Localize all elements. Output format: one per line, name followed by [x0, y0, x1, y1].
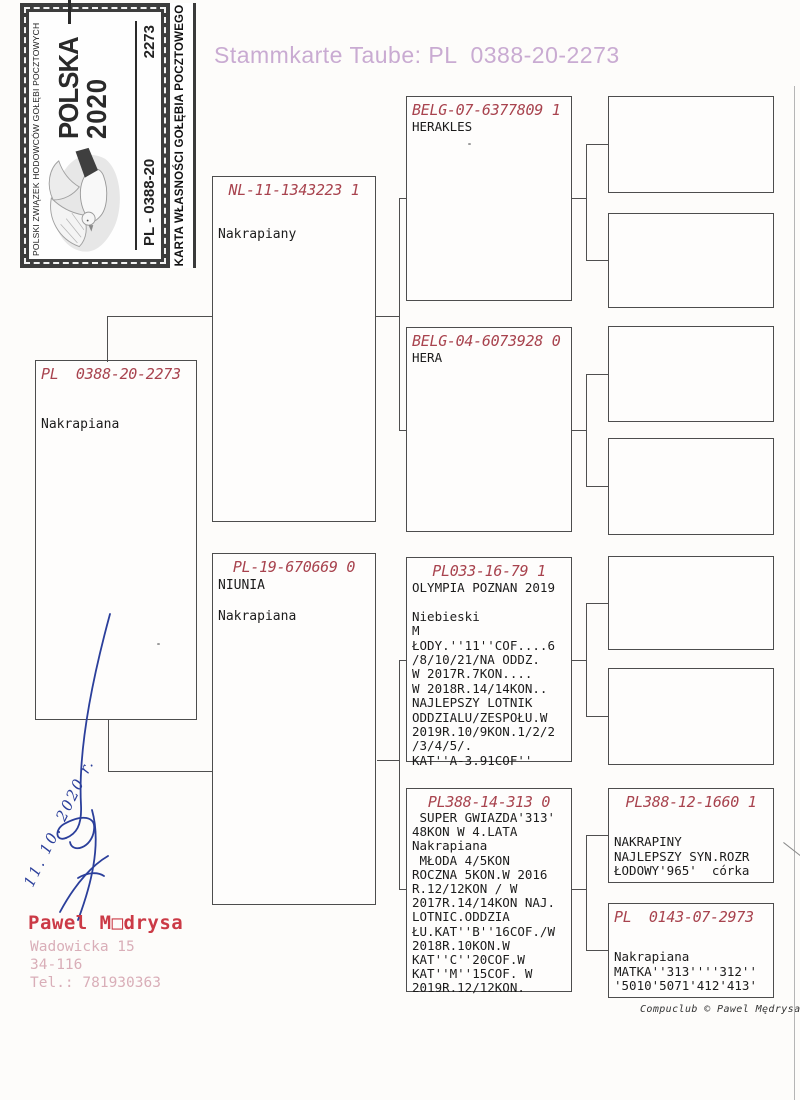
ring-number: BELG-04-6073928 0	[412, 332, 566, 350]
box-great-grandparent-3	[608, 326, 774, 422]
connector-line	[107, 316, 212, 317]
connector-line	[376, 316, 399, 317]
ring-number: PL 0388-20-2273	[41, 365, 191, 383]
connector-line	[586, 486, 608, 487]
bird-info: NIUNIA Nakrapiana	[218, 578, 370, 625]
ring-number: PL388-12-1660 1	[614, 793, 768, 811]
box-great-grandparent-6	[608, 668, 774, 765]
connector-line	[399, 198, 406, 199]
connector-line	[586, 835, 608, 836]
connector-line	[399, 660, 400, 890]
connector-line	[586, 144, 608, 145]
box-great-grandparent-8: PL 0143-07-2973 Nakrapiana MATKA''313'''…	[608, 903, 774, 998]
ring-number: PL 0143-07-2973	[614, 908, 768, 926]
connector-line	[586, 835, 587, 950]
bird-info: NAKRAPINY NAJLEPSZY SYN.ROZR ŁODOWY'965'…	[614, 835, 768, 879]
ring-number: PL388-14-313 0	[412, 793, 566, 811]
bird-info: Nakrapiana MATKA''313''''312'' '5010'507…	[614, 950, 768, 994]
box-great-grandparent-5	[608, 556, 774, 650]
connector-line	[572, 198, 586, 199]
stamp-rotated-content: POLSKI ZWIĄZEK HODOWCÓW GOŁĘBI POCZTOWYC…	[20, 3, 196, 268]
bird-info: Nakrapiana	[41, 417, 191, 433]
connector-line	[107, 316, 108, 362]
connector-line	[572, 889, 586, 890]
stamp-year: 2020	[83, 0, 111, 139]
connector-line	[586, 603, 587, 716]
handwritten-signature-ink	[48, 610, 148, 930]
bird-info: Nakrapiany	[218, 227, 370, 243]
scan-stray-mark	[783, 842, 800, 857]
box-great-grandparent-4	[608, 438, 774, 535]
connector-line	[399, 198, 400, 431]
box-great-grandparent-7: PL388-12-1660 1 NAKRAPINY NAJLEPSZY SYN.…	[608, 788, 774, 883]
pedigree-card-scan: POLSKI ZWIĄZEK HODOWCÓW GOŁĘBI POCZTOWYC…	[0, 0, 800, 1100]
owner-address: Wadowicka 15 34-116 Tel.: 781930363	[30, 938, 161, 992]
box-grandfather-maternal: PL033-16-79 1 OLYMPIA POZNAN 2019 Niebie…	[406, 557, 572, 762]
connector-line	[586, 374, 608, 375]
box-grandfather-paternal: BELG-07-6377809 1 HERAKLES	[406, 96, 572, 301]
connector-line	[399, 889, 406, 890]
box-grandmother-maternal: PL388-14-313 0 SUPER GWIAZDA'313' 48KON …	[406, 788, 572, 992]
connector-line	[586, 950, 608, 951]
ring-number: PL-19-670669 0	[218, 558, 370, 576]
ownership-stamp: POLSKI ZWIĄZEK HODOWCÓW GOŁĘBI POCZTOWYC…	[20, 3, 193, 268]
owner-name: Pawel M□drysa	[28, 912, 183, 934]
scan-speck	[157, 643, 160, 645]
stamp-dash	[68, 0, 71, 24]
box-mother: PL-19-670669 0 NIUNIA Nakrapiana	[212, 553, 376, 905]
connector-line	[572, 430, 586, 431]
page-title: Stammkarte Taube: PL 0388-20-2273	[214, 42, 620, 69]
footer-credit: Compuclub © Pawel Mędrysa	[640, 1004, 800, 1015]
stamp-ring-series: PL - 0388-20	[141, 159, 158, 246]
scan-edge-artifact	[794, 86, 795, 1100]
box-father: NL-11-1343223 1 Nakrapiany	[212, 176, 376, 522]
bird-info: OLYMPIA POZNAN 2019 Niebieski M ŁODY.''1…	[412, 581, 566, 768]
stamp-ring-number: 2273	[141, 25, 158, 58]
federation-name: POLSKI ZWIĄZEK HODOWCÓW GOŁĘBI POCZTOWYC…	[29, 12, 41, 259]
stamp-inner-area: POLSKI ZWIĄZEK HODOWCÓW GOŁĘBI POCZTOWYC…	[29, 12, 161, 259]
box-great-grandparent-2	[608, 213, 774, 308]
bird-info: SUPER GWIAZDA'313' 48KON W 4.LATA Nakrap…	[412, 811, 566, 996]
connector-line	[572, 660, 586, 661]
scan-speck	[468, 143, 471, 145]
connector-line	[399, 430, 406, 431]
bird-info: HERAKLES	[412, 119, 566, 135]
connector-line	[586, 144, 587, 260]
box-great-grandparent-1	[608, 96, 774, 193]
stamp-card-title: KARTA WŁASNOŚCI GOŁĘBIA POCZTOWEGO	[170, 3, 190, 268]
connector-line	[399, 660, 406, 661]
stamp-country: POLSKA	[55, 37, 83, 139]
ring-number: BELG-07-6377809 1	[412, 101, 566, 119]
connector-line	[586, 374, 587, 486]
box-grandmother-paternal: BELG-04-6073928 0 HERA	[406, 327, 572, 532]
ring-number: NL-11-1343223 1	[218, 181, 370, 199]
connector-line	[586, 260, 608, 261]
connector-line	[586, 603, 608, 604]
bird-info: HERA	[412, 350, 566, 366]
ring-number: PL033-16-79 1	[412, 562, 566, 580]
connector-line	[586, 716, 608, 717]
pigeon-icon	[42, 141, 124, 259]
connector-line	[377, 760, 399, 761]
